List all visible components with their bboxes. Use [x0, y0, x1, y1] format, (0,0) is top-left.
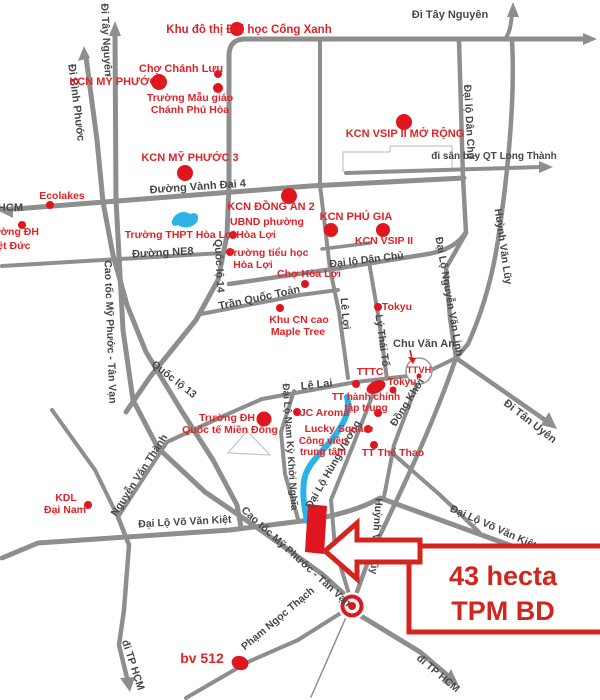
place-label-cong-vien-1: Công viên: [299, 436, 347, 447]
road-label-chu-van-an: Chu Văn An: [393, 338, 455, 350]
place-label-kcn-my-phuoc-3: KCN MỸ PHƯỚC 3: [141, 151, 238, 164]
road-label-vo-van-kiet-w: Đại Lộ Võ Văn Kiệt: [138, 514, 232, 531]
road-label-ne8: Đường NE8: [132, 245, 194, 260]
place-label-mau-giao-1: Trường Mẫu giáo: [147, 91, 233, 104]
road-label-cao-toc-left: Cao tốc Mỹ Phước - Tân Vạn: [101, 260, 118, 404]
place-label-kcn-dong-an-2: KCN ĐỒNG AN 2: [227, 200, 315, 213]
place-label-kcn-vsip-2: KCN VSIP II: [355, 235, 413, 247]
place-label-kcn-vsip2-mr: KCN VSIP II MỞ RỘNG: [346, 127, 465, 140]
road-san-bay: [346, 167, 540, 173]
marker-dot: [276, 304, 284, 312]
place-label-kdl-2: Đại Nam: [44, 504, 86, 516]
place-label-mau-giao-2: Chánh Phú Hòa: [151, 104, 229, 116]
road-label-tp-hcm: TP HCM: [0, 202, 23, 214]
marker-dot: [324, 223, 338, 237]
arrow-top-right-icon: [583, 33, 597, 45]
map-canvas: Đi Bình Phước Đi Tây Nguyên Đi Tây Nguyê…: [0, 0, 600, 700]
lake-hoa-loi: [172, 212, 198, 227]
place-label-khu-do-thi: Khu đô thị Đại học Cống Xanh: [166, 24, 331, 36]
callout-line2: TPM BD: [451, 596, 555, 626]
place-label-tt-the-thao: TT Thể Thao: [362, 447, 424, 459]
place-label-bv-512: bv 512: [180, 650, 224, 666]
road-label-pham-ngoc-thach: Phạm Ngọc Thạch: [239, 585, 317, 653]
place-label-kcn-phu-gia: KCN PHÚ GIA: [320, 210, 393, 223]
place-label-dh-viet-duc-2: Việt Đức: [0, 240, 31, 252]
place-label-dh-mien-dong-2: Quốc tế Miền Đông: [182, 424, 278, 436]
place-label-tieu-hoc-1: Trường tiểu học: [228, 247, 309, 259]
road-label-di-tay-nguyen-left: Đi Tây Nguyên: [98, 3, 114, 76]
callout-line1: 43 hecta: [449, 561, 558, 591]
place-label-kdl-1: KDL: [55, 492, 77, 504]
place-label-tieu-hoc-2: Hòa Lợi: [233, 259, 273, 271]
road-di-tan-uyen: [456, 358, 545, 420]
road-label-ly-thai-to: Lý Thái Tổ: [372, 314, 391, 368]
road-map-svg: Đi Bình Phước Đi Tây Nguyên Đi Tây Nguyê…: [0, 0, 600, 700]
place-label-tt-hanh-chinh-2: tập trung: [344, 403, 387, 414]
place-label-ijc-aroma: IJC Aroma: [297, 407, 349, 419]
place-label-ttvh: TTVH: [407, 365, 432, 376]
place-label-tttc: TTTC: [357, 366, 384, 378]
place-label-tokyu-1: Tokyu: [382, 301, 412, 313]
place-label-khu-cn-cao-1: Khu CN cao: [269, 314, 329, 326]
road-label-le-lai: Lê Lai: [300, 377, 333, 392]
place-label-tt-hanh-chinh-1: TT hành chính: [332, 392, 400, 403]
place-label-tokyu-2: Tokyu: [388, 377, 417, 388]
road-label-di-san-bay: đi sân bay QT Long Thành: [431, 151, 557, 162]
place-label-kcn-my-phuoc-2: KCN MỸ PHƯỚC 2: [69, 75, 166, 88]
place-label-ubnd-2: Hòa Lợi: [236, 229, 276, 241]
marker-dot: [46, 201, 54, 209]
marker-dot: [177, 165, 193, 181]
place-label-cong-vien-2: trung tâm: [300, 447, 346, 458]
place-label-ecolakes: Ecolakes: [39, 190, 85, 202]
road-label-di-tp-hcm-se: đi TP HCM: [414, 652, 462, 695]
place-label-lucky-square: Lucky Square: [305, 423, 374, 435]
place-label-cho-hoa-loi: Chợ Hòa Lợi: [277, 268, 341, 280]
marker-dot: [352, 380, 360, 388]
place-label-cho-chanh-luu: Chợ Chánh Lưu: [139, 63, 223, 75]
road-label-nguyen-van-thanh: Nguyễn Văn Thành: [108, 432, 171, 519]
arrow-tay-nguyen-top-icon: [507, 2, 519, 17]
road-label-di-tay-nguyen-top: Đi Tây Nguyên: [412, 9, 489, 21]
place-label-khu-cn-cao-2: Maple Tree: [271, 326, 325, 338]
marker-dot: [301, 280, 309, 288]
place-label-dh-mien-dong-1: Trường ĐH: [199, 412, 255, 424]
place-label-dh-viet-duc-1: Trường ĐH: [0, 226, 39, 238]
site-43ha-rect: [305, 504, 327, 554]
marker-dot: [374, 303, 382, 311]
arrow-san-bay-icon: [539, 161, 553, 173]
place-label-thpt-hoa-loi: Trường THPT Hòa Lợi: [125, 229, 236, 241]
place-label-ubnd-1: UBND phường: [230, 216, 304, 228]
